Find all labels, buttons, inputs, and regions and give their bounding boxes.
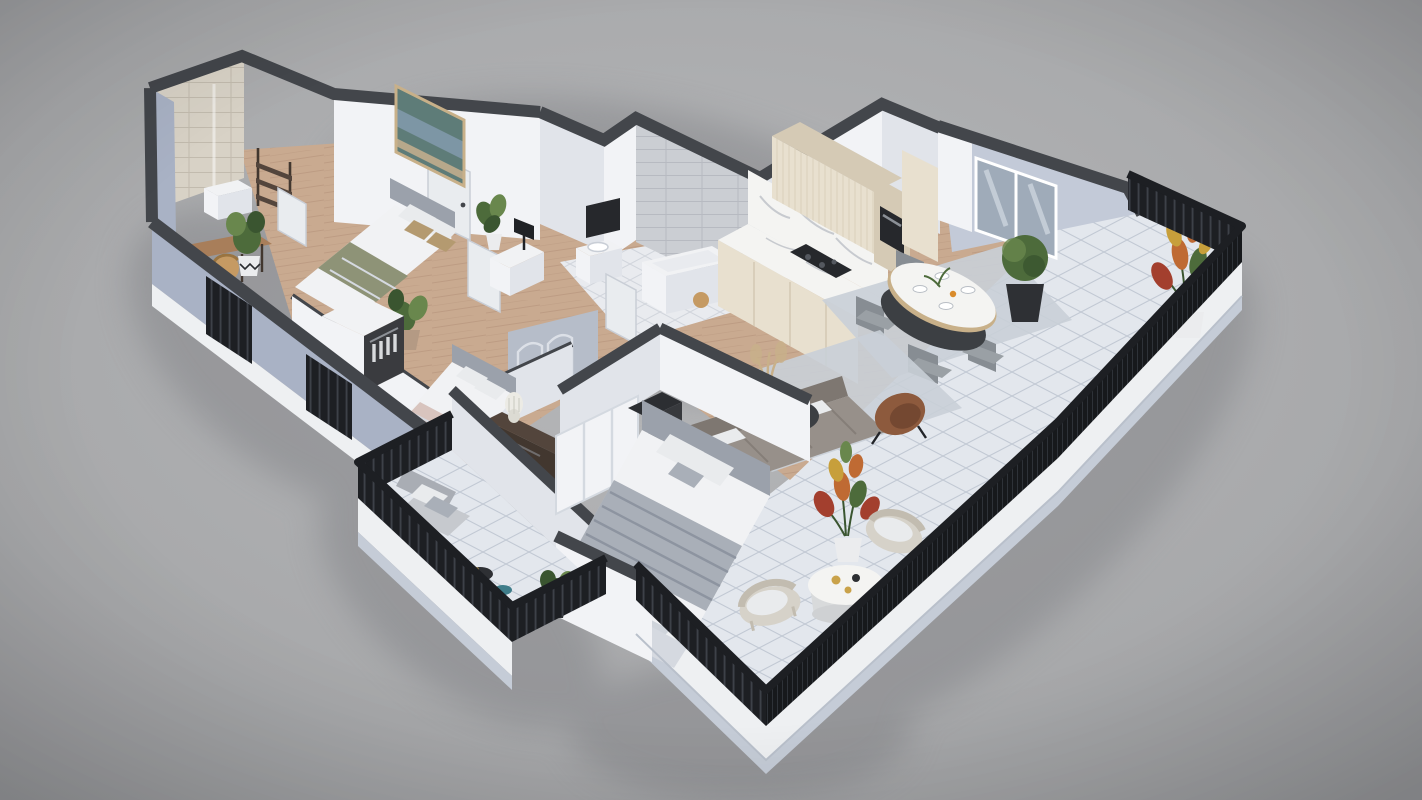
isometric-apartment-svg: [0, 0, 1422, 800]
floorplan-render: [0, 0, 1422, 800]
vignette: [0, 0, 1422, 800]
